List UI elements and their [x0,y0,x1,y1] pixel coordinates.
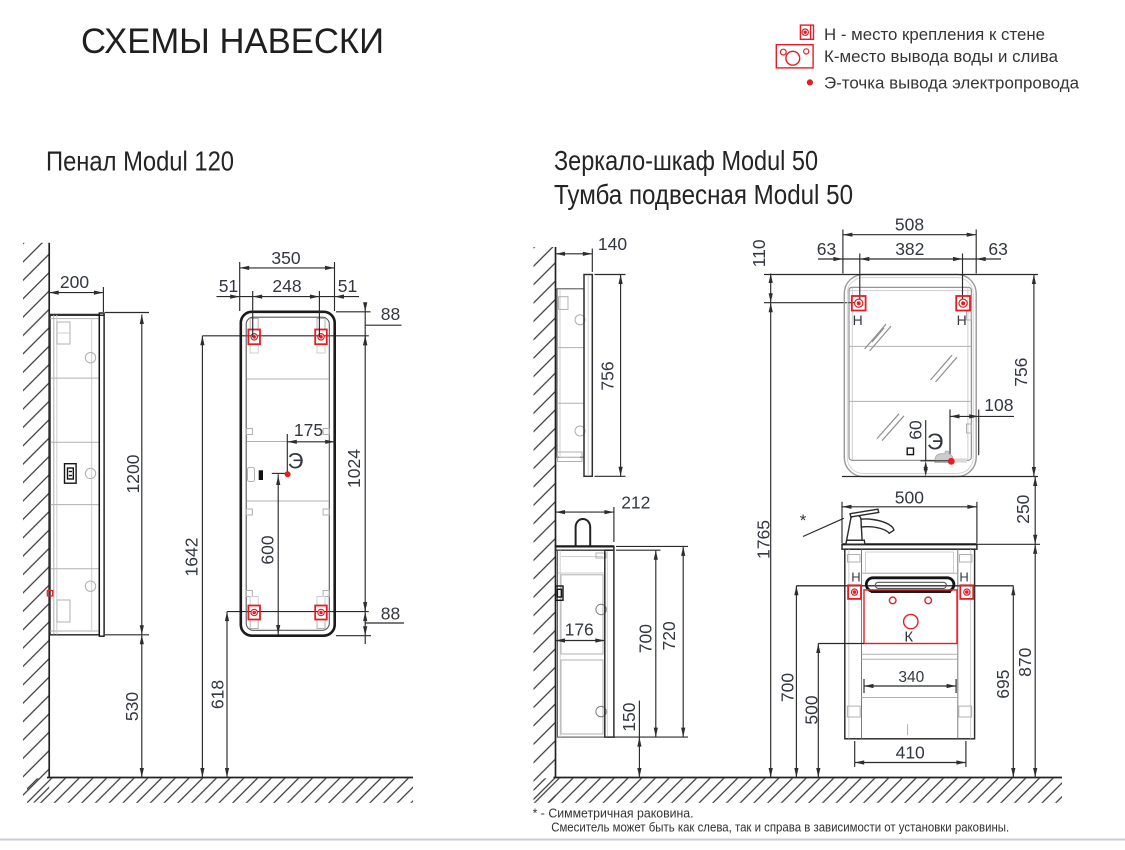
svg-text:63: 63 [817,239,836,259]
svg-text:175: 175 [294,420,323,440]
svg-text:Э-точка вывода электропровода: Э-точка вывода электропровода [824,74,1080,93]
svg-text:1200: 1200 [123,454,143,493]
svg-text:88: 88 [381,604,400,624]
svg-text:Э: Э [288,449,304,474]
svg-text:756: 756 [598,361,618,390]
svg-text:Тумба подвесная Modul 50: Тумба подвесная Modul 50 [554,179,853,210]
svg-text:248: 248 [272,276,301,296]
svg-text:Смеситель может быть как слева: Смеситель может быть как слева, так и сп… [551,821,1009,835]
svg-text:1642: 1642 [182,538,202,577]
svg-text:140: 140 [598,234,627,254]
svg-text:200: 200 [60,272,89,292]
svg-text:756: 756 [1011,358,1031,387]
svg-text:Н: Н [959,570,968,585]
svg-text:870: 870 [1015,647,1035,676]
svg-text:К-место вывода воды и слива: К-место вывода воды и слива [824,47,1059,66]
svg-text:Н: Н [851,570,860,585]
svg-text:382: 382 [895,239,924,259]
svg-text:Пенал Modul 120: Пенал Modul 120 [46,146,234,177]
svg-text:700: 700 [778,673,798,702]
svg-text:88: 88 [381,304,400,324]
svg-text:410: 410 [896,743,925,763]
svg-text:500: 500 [802,695,822,724]
svg-text:Э: Э [927,429,944,455]
svg-text:* - Симметричная раковина.: * - Симметричная раковина. [533,807,694,821]
svg-text:К: К [904,629,913,646]
svg-text:212: 212 [621,493,650,513]
svg-text:Н - место крепления к стене: Н - место крепления к стене [824,25,1045,44]
svg-text:720: 720 [659,621,679,650]
svg-text:340: 340 [898,669,924,686]
svg-text:СХЕМЫ НАВЕСКИ: СХЕМЫ НАВЕСКИ [81,22,384,61]
svg-text:1765: 1765 [754,520,774,559]
svg-text:700: 700 [636,624,656,653]
svg-text:176: 176 [565,620,594,640]
svg-text:60: 60 [906,420,926,440]
svg-text:508: 508 [895,215,924,235]
svg-text:110: 110 [749,239,769,267]
svg-text:695: 695 [993,670,1013,699]
svg-text:618: 618 [208,680,228,709]
svg-text:530: 530 [122,692,142,721]
svg-text:350: 350 [271,248,300,268]
svg-text:Н: Н [957,312,967,328]
svg-text:51: 51 [338,276,357,296]
svg-text:*: * [800,511,807,530]
svg-text:600: 600 [258,535,278,564]
svg-text:51: 51 [219,276,238,296]
svg-text:Н: Н [853,312,863,328]
svg-text:1024: 1024 [344,449,364,488]
svg-text:Зеркало-шкаф Modul 50: Зеркало-шкаф Modul 50 [554,145,818,176]
svg-text:108: 108 [984,395,1013,415]
svg-text:63: 63 [988,239,1007,259]
svg-text:250: 250 [1013,494,1033,523]
svg-text:150: 150 [619,702,639,731]
svg-text:500: 500 [895,488,924,508]
